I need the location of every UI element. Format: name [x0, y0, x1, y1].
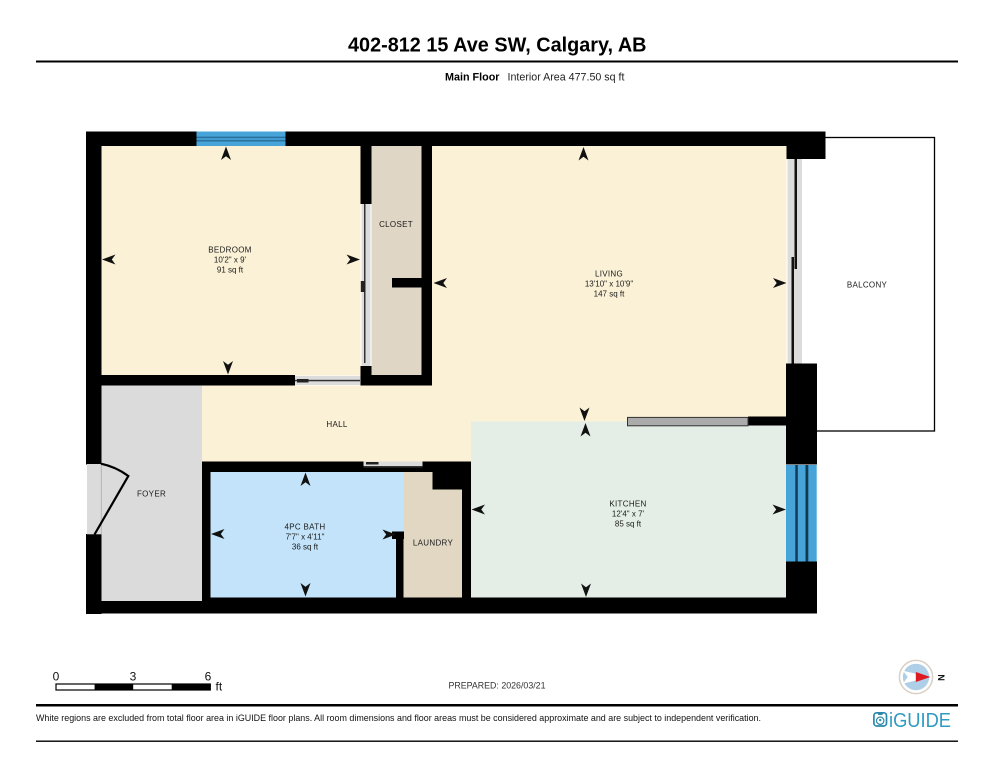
svg-text:LAUNDRY: LAUNDRY — [413, 539, 454, 548]
svg-text:FOYER: FOYER — [137, 490, 166, 499]
svg-text:KITCHEN: KITCHEN — [609, 500, 646, 509]
svg-text:36 sq ft: 36 sq ft — [292, 543, 319, 552]
svg-text:13'10" x 10'9": 13'10" x 10'9" — [585, 280, 633, 289]
svg-text:7'7" x 4'11": 7'7" x 4'11" — [286, 533, 325, 542]
svg-text:402-812 15 Ave SW, Calgary, AB: 402-812 15 Ave SW, Calgary, AB — [348, 35, 647, 57]
svg-text:White regions are excluded fro: White regions are excluded from total fl… — [36, 713, 761, 723]
svg-text:10'2" x 9': 10'2" x 9' — [214, 256, 247, 265]
svg-text:BEDROOM: BEDROOM — [208, 246, 251, 255]
svg-text:85 sq ft: 85 sq ft — [615, 520, 642, 529]
svg-text:LIVING: LIVING — [595, 270, 623, 279]
svg-text:PREPARED: 2026/03/21: PREPARED: 2026/03/21 — [449, 681, 546, 692]
svg-text:N: N — [936, 674, 946, 681]
svg-text:91 sq ft: 91 sq ft — [217, 266, 244, 275]
svg-text:12'4" x 7': 12'4" x 7' — [612, 510, 645, 519]
svg-text:HALL: HALL — [326, 420, 347, 429]
svg-text:147 sq ft: 147 sq ft — [594, 290, 625, 299]
svg-text:0: 0 — [53, 670, 60, 684]
svg-text:BALCONY: BALCONY — [847, 281, 888, 290]
svg-text:ft: ft — [216, 680, 223, 694]
svg-text:6: 6 — [205, 670, 212, 684]
svg-text:Interior Area 477.50 sq ft: Interior Area 477.50 sq ft — [508, 72, 625, 84]
svg-text:iGUIDE: iGUIDE — [889, 709, 951, 732]
svg-text:3: 3 — [130, 670, 137, 684]
svg-text:Main Floor: Main Floor — [445, 72, 500, 84]
svg-text:4PC BATH: 4PC BATH — [285, 523, 326, 532]
svg-text:CLOSET: CLOSET — [379, 220, 413, 229]
